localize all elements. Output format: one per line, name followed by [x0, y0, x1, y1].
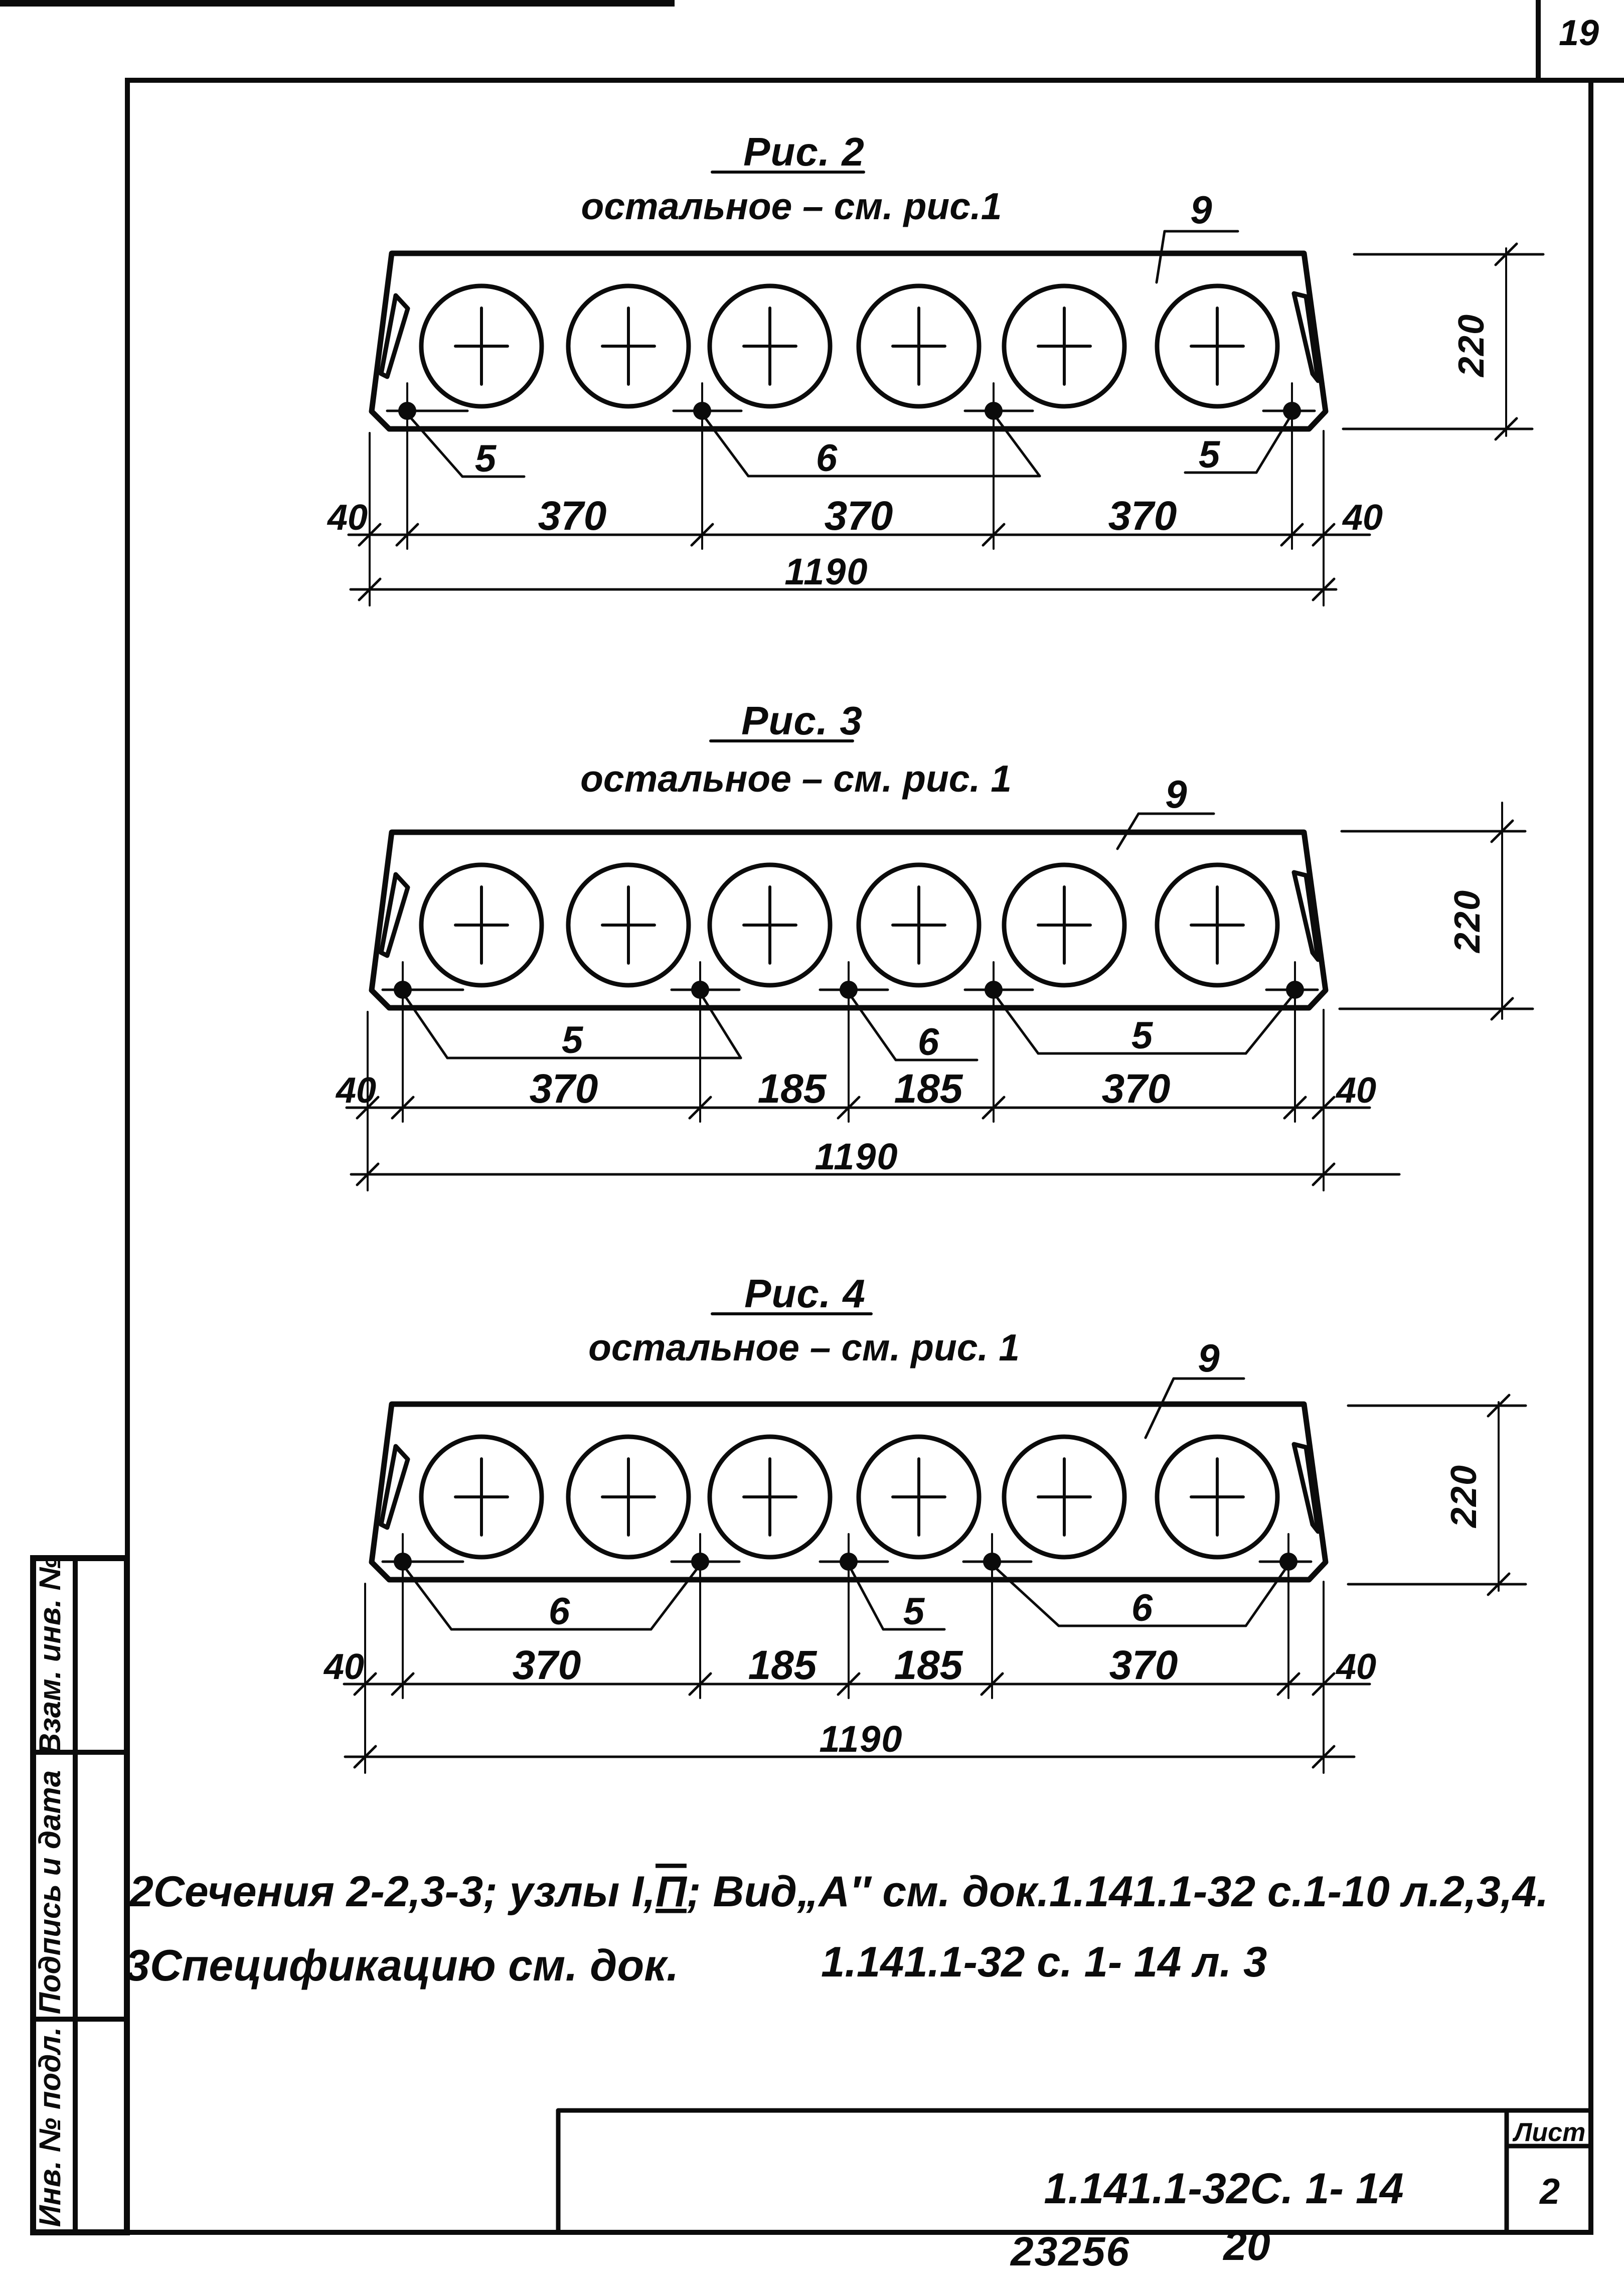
- svg-text:40: 40: [1342, 498, 1383, 538]
- svg-text:370: 370: [1109, 1642, 1178, 1688]
- svg-text:185: 185: [894, 1066, 963, 1112]
- svg-text:остальное – см. рис. 1: остальное – см. рис. 1: [588, 1326, 1020, 1369]
- svg-text:Рис. 2: Рис. 2: [743, 129, 865, 174]
- svg-text:5: 5: [1131, 1014, 1154, 1057]
- svg-text:40: 40: [1335, 1071, 1376, 1111]
- svg-text:Рис. 4: Рис. 4: [744, 1271, 866, 1316]
- svg-text:40: 40: [323, 1647, 364, 1687]
- svg-text:220: 220: [1444, 1464, 1484, 1529]
- svg-text:9: 9: [1165, 772, 1187, 816]
- svg-text:185: 185: [748, 1642, 818, 1688]
- svg-text:3Спецификацию см. док.: 3Спецификацию см. док.: [125, 1940, 679, 1990]
- svg-text:1190: 1190: [819, 1718, 903, 1760]
- svg-text:40: 40: [1335, 1647, 1376, 1687]
- svg-text:9: 9: [1190, 188, 1212, 232]
- svg-text:5: 5: [1199, 433, 1221, 476]
- svg-text:Инв. № подл.: Инв. № подл.: [33, 2027, 67, 2227]
- svg-text:220: 220: [1447, 889, 1488, 954]
- svg-text:6: 6: [816, 437, 838, 480]
- svg-text:5: 5: [903, 1590, 925, 1633]
- svg-text:1190: 1190: [784, 551, 868, 592]
- svg-text:Рис. 3: Рис. 3: [741, 698, 863, 743]
- svg-text:2: 2: [1539, 2172, 1560, 2212]
- svg-text:40: 40: [335, 1071, 376, 1111]
- svg-text:370: 370: [1108, 493, 1177, 539]
- svg-text:остальное – см. рис. 1: остальное – см. рис. 1: [580, 757, 1012, 800]
- svg-text:20: 20: [1222, 2222, 1270, 2269]
- svg-text:5: 5: [475, 437, 497, 480]
- svg-text:19: 19: [1559, 13, 1599, 53]
- svg-text:6: 6: [549, 1590, 570, 1633]
- svg-text:23256: 23256: [1010, 2229, 1130, 2274]
- svg-text:2Сечения 2-2,3-3; узлы I,П; Ви: 2Сечения 2-2,3-3; узлы I,П; Вид„А″ см. д…: [128, 1868, 1548, 1916]
- svg-text:370: 370: [825, 493, 893, 539]
- svg-text:остальное – см. рис.1: остальное – см. рис.1: [581, 185, 1002, 227]
- svg-text:Лист: Лист: [1512, 2118, 1586, 2147]
- svg-text:370: 370: [538, 493, 607, 539]
- svg-text:370: 370: [1102, 1066, 1171, 1112]
- svg-text:185: 185: [758, 1066, 827, 1112]
- svg-text:185: 185: [894, 1642, 963, 1688]
- svg-text:40: 40: [327, 498, 368, 538]
- svg-text:1.141.1-32С. 1- 14: 1.141.1-32С. 1- 14: [1044, 2165, 1403, 2213]
- svg-text:1190: 1190: [815, 1136, 898, 1177]
- svg-text:6: 6: [918, 1021, 939, 1063]
- svg-text:9: 9: [1198, 1336, 1220, 1380]
- svg-text:220: 220: [1451, 314, 1492, 378]
- svg-text:Подпись и дата: Подпись и дата: [33, 1770, 67, 2014]
- svg-text:1.141.1-32 с. 1- 14 л. 3: 1.141.1-32 с. 1- 14 л. 3: [821, 1938, 1267, 1986]
- svg-text:370: 370: [530, 1066, 598, 1112]
- svg-text:370: 370: [513, 1642, 581, 1688]
- svg-text:Взам. инв. №: Взам. инв. №: [33, 1556, 67, 1755]
- svg-text:5: 5: [562, 1019, 584, 1061]
- svg-text:6: 6: [1131, 1587, 1153, 1629]
